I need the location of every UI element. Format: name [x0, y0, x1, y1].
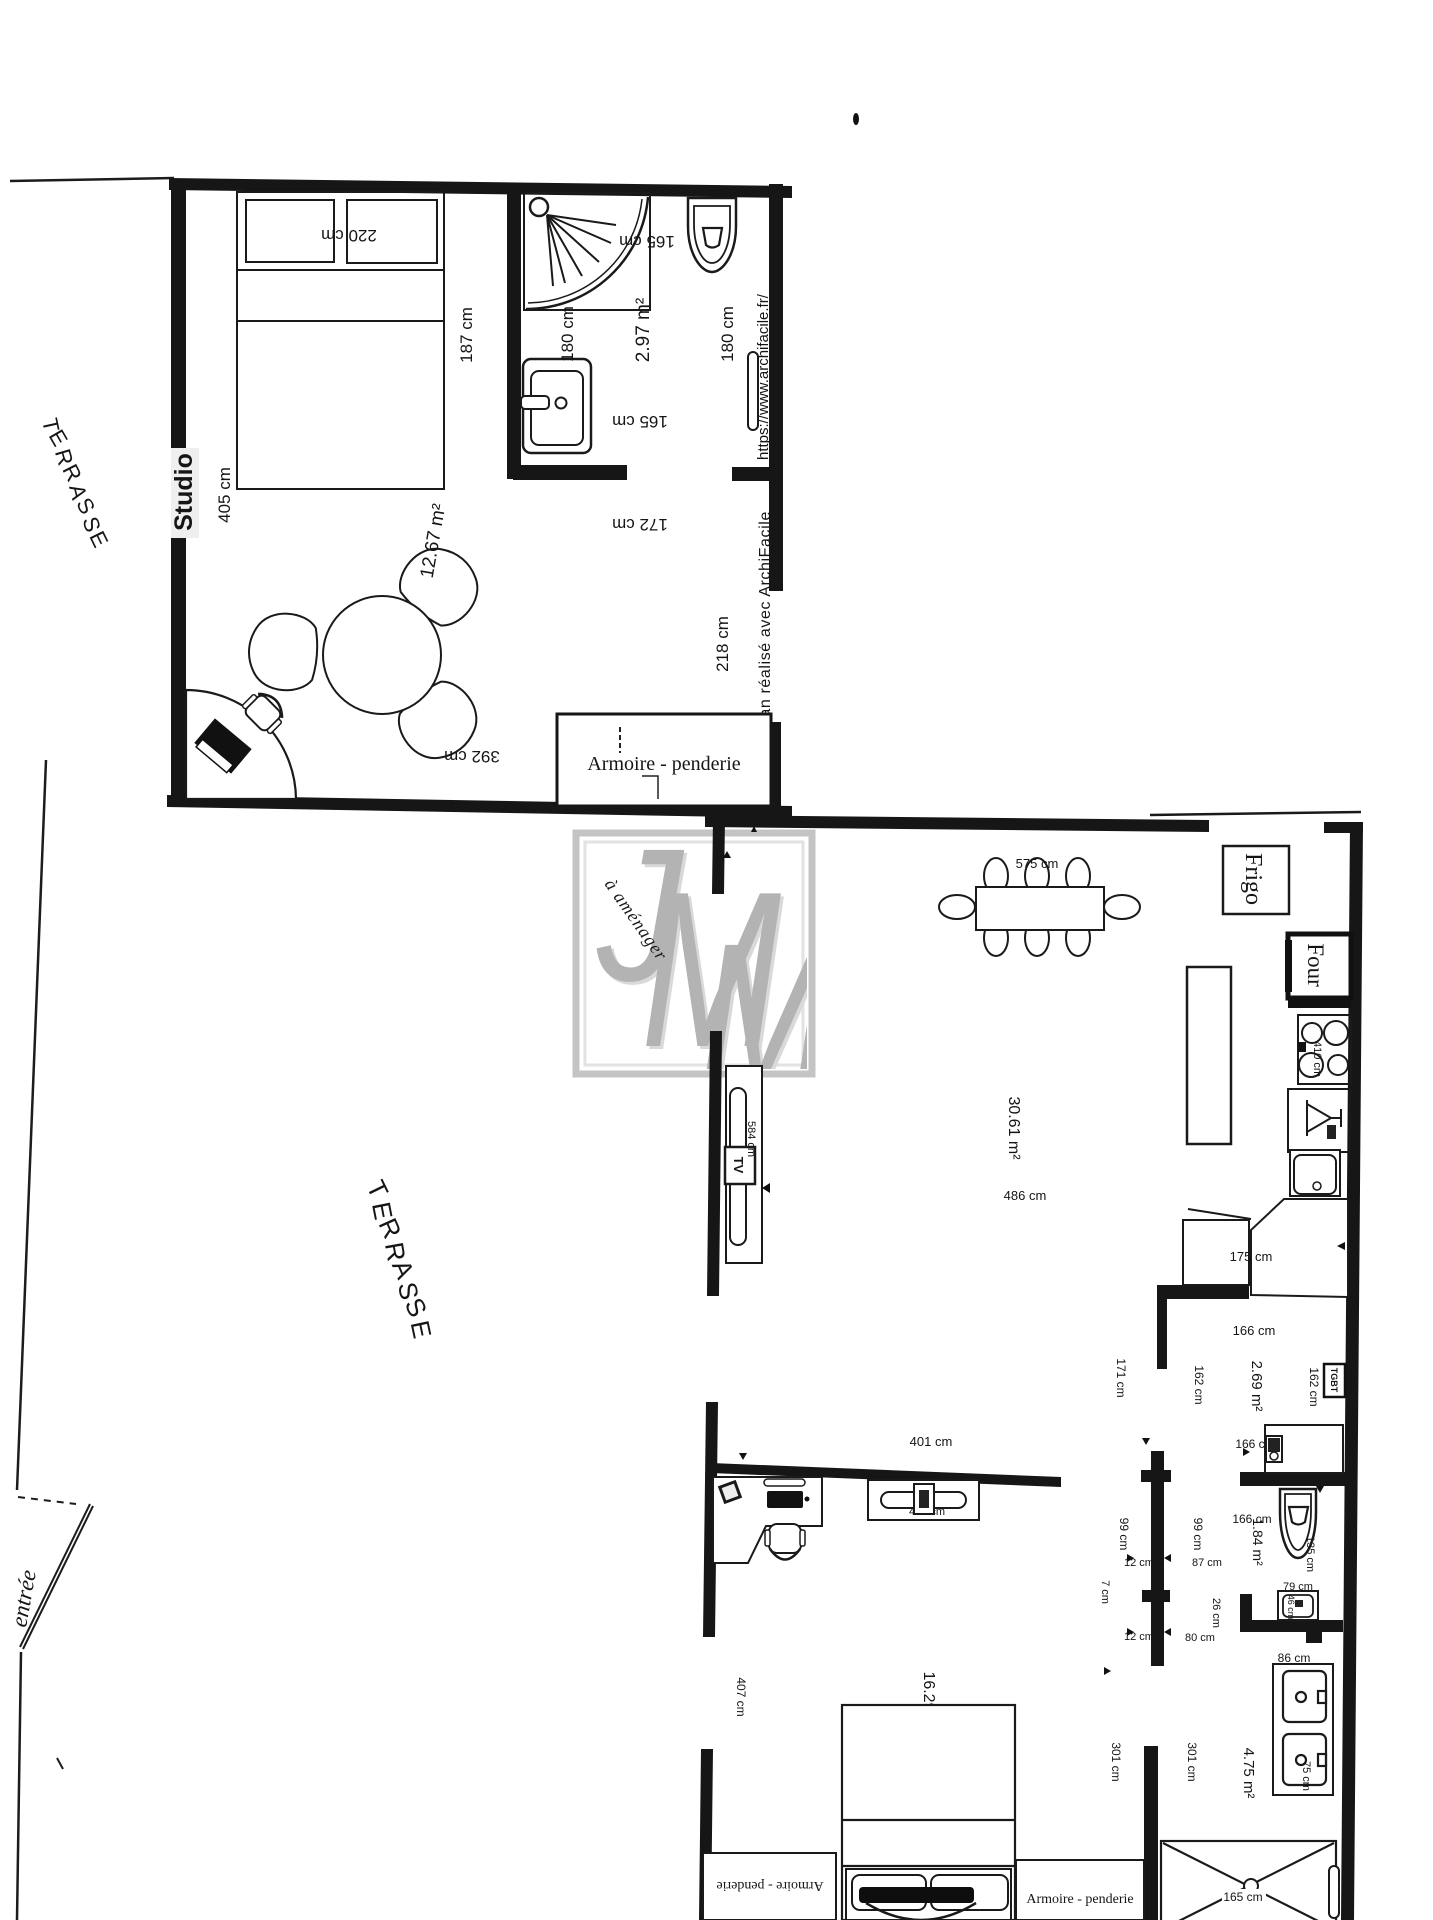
svg-text:162 cm: 162 cm: [1307, 1367, 1321, 1406]
svg-text:Studio: Studio: [170, 453, 198, 531]
svg-text:46 cm: 46 cm: [1286, 1595, 1296, 1620]
svg-text:80 cm: 80 cm: [1185, 1632, 1215, 1644]
svg-text:4.75 m²: 4.75 m²: [1240, 1748, 1257, 1799]
svg-text:87 cm: 87 cm: [1192, 1557, 1222, 1569]
svg-text:165 cm: 165 cm: [1223, 1890, 1262, 1904]
svg-text:407 cm: 407 cm: [734, 1677, 748, 1716]
svg-text:Armoire - penderie: Armoire - penderie: [716, 1878, 823, 1893]
svg-text:2.97 m²: 2.97 m²: [633, 298, 654, 362]
svg-text:75 cm: 75 cm: [1300, 1761, 1312, 1791]
svg-text:175 cm: 175 cm: [1230, 1249, 1273, 1264]
svg-text:135 cm: 135 cm: [1304, 1536, 1316, 1572]
svg-text:166 cm: 166 cm: [1233, 1323, 1276, 1338]
svg-text:26 cm: 26 cm: [1210, 1598, 1222, 1628]
svg-text:Armoire - penderie: Armoire - penderie: [1026, 1892, 1133, 1907]
svg-text:180 cm: 180 cm: [558, 306, 577, 362]
svg-text:180 cm: 180 cm: [718, 306, 737, 362]
svg-text:301 cm: 301 cm: [1185, 1742, 1199, 1781]
svg-text:218 cm: 218 cm: [713, 616, 732, 672]
svg-text:79 cm: 79 cm: [1283, 1581, 1313, 1593]
svg-text:584 cm: 584 cm: [745, 1121, 757, 1157]
svg-text:392 cm: 392 cm: [444, 747, 500, 766]
svg-text:86 cm: 86 cm: [1278, 1651, 1311, 1665]
svg-text:Plan réalisé avec ArchiFacile: Plan réalisé avec ArchiFacile: [757, 511, 774, 733]
svg-text:171 cm: 171 cm: [1114, 1358, 1128, 1397]
svg-text:99 cm: 99 cm: [1191, 1518, 1205, 1551]
svg-text:https://www.archifacile.fr/: https://www.archifacile.fr/: [755, 293, 772, 460]
svg-text:187 cm: 187 cm: [457, 307, 476, 363]
svg-text:2.69 m²: 2.69 m²: [1248, 1361, 1265, 1412]
svg-text:401 cm: 401 cm: [910, 1434, 953, 1449]
svg-text:TGBT: TGBT: [1329, 1368, 1339, 1393]
svg-text:405 cm: 405 cm: [215, 467, 234, 523]
svg-text:301 cm: 301 cm: [1109, 1742, 1123, 1781]
svg-text:99 cm: 99 cm: [1117, 1518, 1131, 1551]
svg-text:Armoire - penderie: Armoire - penderie: [587, 753, 740, 775]
svg-text:165 cm: 165 cm: [612, 412, 668, 431]
svg-text:TV: TV: [731, 1157, 746, 1174]
svg-text:Four: Four: [1303, 943, 1328, 987]
svg-text:410 cm: 410 cm: [1311, 1041, 1323, 1077]
svg-text:Frigo: Frigo: [1240, 853, 1266, 905]
svg-text:172 cm: 172 cm: [612, 515, 668, 534]
svg-text:486 cm: 486 cm: [1004, 1188, 1047, 1203]
svg-text:220 cm: 220 cm: [321, 226, 377, 245]
svg-text:165 cm: 165 cm: [619, 232, 675, 251]
svg-text:30.61 m²: 30.61 m²: [1005, 1096, 1022, 1160]
svg-text:1.84 m²: 1.84 m²: [1250, 1518, 1266, 1566]
svg-text:162 cm: 162 cm: [1192, 1365, 1206, 1404]
svg-text:575 cm: 575 cm: [1016, 856, 1059, 871]
svg-text:7 cm: 7 cm: [1099, 1580, 1111, 1604]
